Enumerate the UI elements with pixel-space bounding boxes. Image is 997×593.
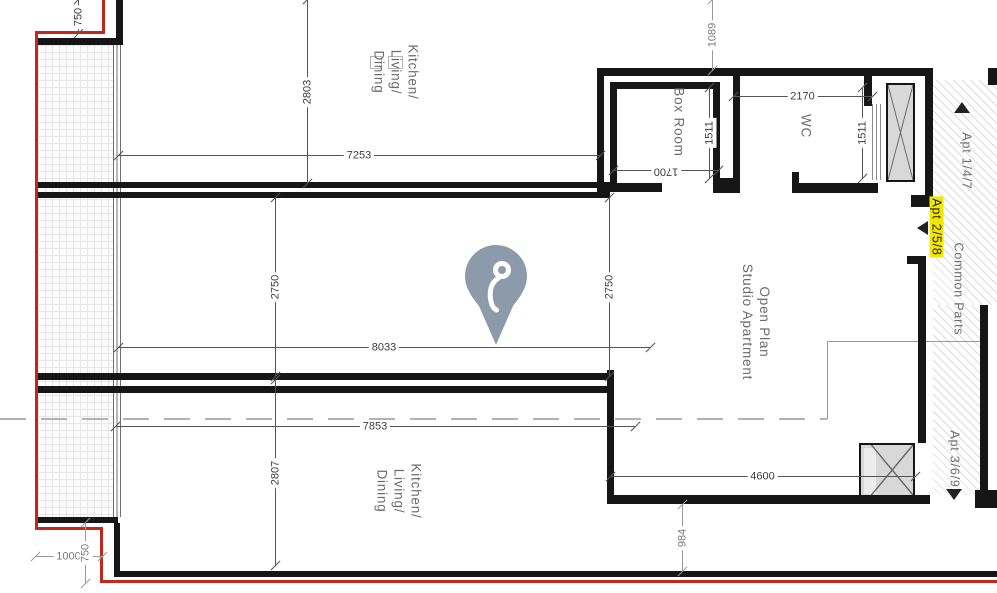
wall-boxroom-bottom — [604, 183, 662, 192]
dimension-label: 1700 — [650, 165, 680, 178]
arrow-down-apt-3-6-9-icon — [946, 489, 962, 500]
red-outline-bottom-h — [100, 580, 997, 583]
balcony-grid — [38, 45, 113, 517]
label-common-parts: Common Parts — [950, 243, 967, 336]
dimension-750: 750 — [78, 0, 79, 33]
room-wc: WC — [798, 114, 815, 138]
label-apt-1-4-7: Apt 1/4/7 — [958, 132, 975, 189]
dimension-label: 7253 — [344, 150, 374, 163]
wall-bottom — [114, 571, 997, 577]
dimension-tick — [303, 0, 313, 4]
wall-wc-bottom — [792, 183, 878, 193]
dimension-label: 7853 — [360, 421, 390, 434]
dimension-tick — [30, 552, 40, 562]
dimension-label: 2750 — [270, 272, 283, 302]
dimension-label: 1511 — [704, 118, 717, 148]
balcony-edge-lines — [113, 45, 121, 517]
dimension-7253: 7253 — [118, 155, 600, 156]
dimension-tick — [271, 561, 281, 571]
label-line: WC — [799, 114, 814, 138]
room-kitchen-living-dining-upper: Kitchen/Living/Dining — [371, 44, 422, 99]
label-line: Living/ — [392, 469, 407, 514]
room-open-plan-studio: Open PlanStudio Apartment — [739, 264, 773, 380]
dimension-label: 750 — [73, 4, 86, 28]
door-leaf-lines — [872, 104, 881, 180]
room-box-room: Box Room — [671, 87, 688, 156]
label-line: Studio Apartment — [740, 264, 755, 380]
red-outline-step-h — [35, 527, 103, 530]
label-line: Open Plan — [757, 287, 772, 358]
dimension-label: 2807 — [270, 457, 283, 487]
dimension-2807: 2807 — [275, 380, 276, 565]
dimension-label: 984 — [677, 526, 690, 550]
label-line: Box Room — [672, 87, 687, 156]
map-pin[interactable] — [462, 243, 530, 347]
label-apt-3-6-9: Apt 3/6/9 — [946, 430, 963, 487]
dimension-label: 750 — [80, 541, 93, 565]
arrow-left-apt-2-5-8-icon — [917, 221, 928, 235]
dimension-2803: 2803 — [307, 0, 308, 183]
dashed-centre-line — [0, 418, 827, 420]
dimension-750: 750 — [85, 523, 86, 583]
dimension-label: 2750 — [604, 272, 617, 302]
wall-upper-b — [38, 192, 610, 198]
dimension-label: 2170 — [787, 91, 817, 104]
wall-right-foot — [975, 490, 997, 508]
wall-topleft-v — [116, 0, 123, 45]
dimension-1511: 1511 — [862, 88, 863, 178]
wall-bottomleft-h — [37, 517, 118, 523]
shaft-cross-icon — [861, 445, 913, 495]
dimension-tick — [81, 579, 91, 589]
dimension-2750: 2750 — [609, 198, 610, 376]
label-line: Apt 1/4/7 — [960, 132, 974, 189]
dimension-tick — [630, 422, 640, 432]
label-line: Dining — [372, 50, 387, 93]
dimension-2170: 2170 — [733, 96, 872, 97]
wall-boxroom-top — [610, 82, 720, 89]
wall-lower-b — [38, 386, 614, 393]
arrow-up-apt-1-4-7-icon — [954, 102, 970, 113]
dimension-2750: 2750 — [275, 198, 276, 376]
shaft-cross-icon — [888, 85, 913, 180]
dimension-7853: 7853 — [115, 426, 635, 427]
dimension-8033: 8033 — [118, 347, 650, 348]
red-outline-left-v — [35, 31, 38, 530]
riser-shaft-top — [886, 83, 915, 182]
red-outline-topleft-v — [102, 0, 105, 34]
floor-plan: 7253217017008033785346001000750280310891… — [0, 0, 997, 593]
wall-right-mid — [980, 305, 988, 490]
reference-line-v — [827, 341, 828, 419]
dimension-4600: 4600 — [610, 476, 915, 477]
label-line: Living/ — [389, 50, 404, 95]
wall-upper-a — [38, 182, 610, 188]
red-outline-top-h — [35, 31, 105, 34]
label-line: Common Parts — [952, 243, 966, 336]
dimension-label: 1089 — [707, 20, 720, 50]
dimension-tick — [74, 0, 84, 4]
wall-topleft-h — [35, 38, 123, 45]
label-line: Apt 3/6/9 — [948, 430, 962, 487]
wall-wc-stub — [792, 172, 799, 184]
wall-right-top — [925, 68, 933, 198]
label-line: Kitchen/ — [409, 463, 424, 518]
dimension-1089: 1089 — [712, 0, 713, 70]
label-line: Apt 2/5/8 — [930, 196, 944, 257]
riser-shaft-bottom — [859, 443, 915, 497]
reference-line-h — [827, 341, 985, 342]
wall-bottomleft-v — [114, 523, 120, 573]
dimension-label: 4600 — [747, 471, 777, 484]
wall-corridor-left — [918, 256, 926, 443]
wall-boxroom-outer-left — [597, 68, 604, 198]
wall-top-main — [597, 68, 933, 76]
wall-lower-a — [38, 373, 614, 380]
wall-topright-corner — [988, 68, 997, 85]
wall-boxroom-left — [610, 82, 617, 192]
dimension-tick — [858, 174, 868, 184]
dimension-label: 1511 — [857, 118, 870, 148]
dimension-984: 984 — [682, 505, 683, 571]
label-line: Dining — [375, 469, 390, 512]
dimension-label: 8033 — [369, 342, 399, 355]
dimension-tick — [708, 0, 718, 4]
room-kitchen-living-dining-lower: Kitchen/Living/Dining — [374, 463, 425, 518]
dimension-label: 2803 — [302, 76, 315, 106]
dimension-tick — [645, 343, 655, 353]
dimension-1511: 1511 — [709, 88, 710, 178]
label-line: Kitchen/ — [406, 44, 421, 99]
label-apt-2-5-8[interactable]: Apt 2/5/8 — [928, 196, 945, 257]
dimension-1700: 1700 — [613, 170, 718, 171]
